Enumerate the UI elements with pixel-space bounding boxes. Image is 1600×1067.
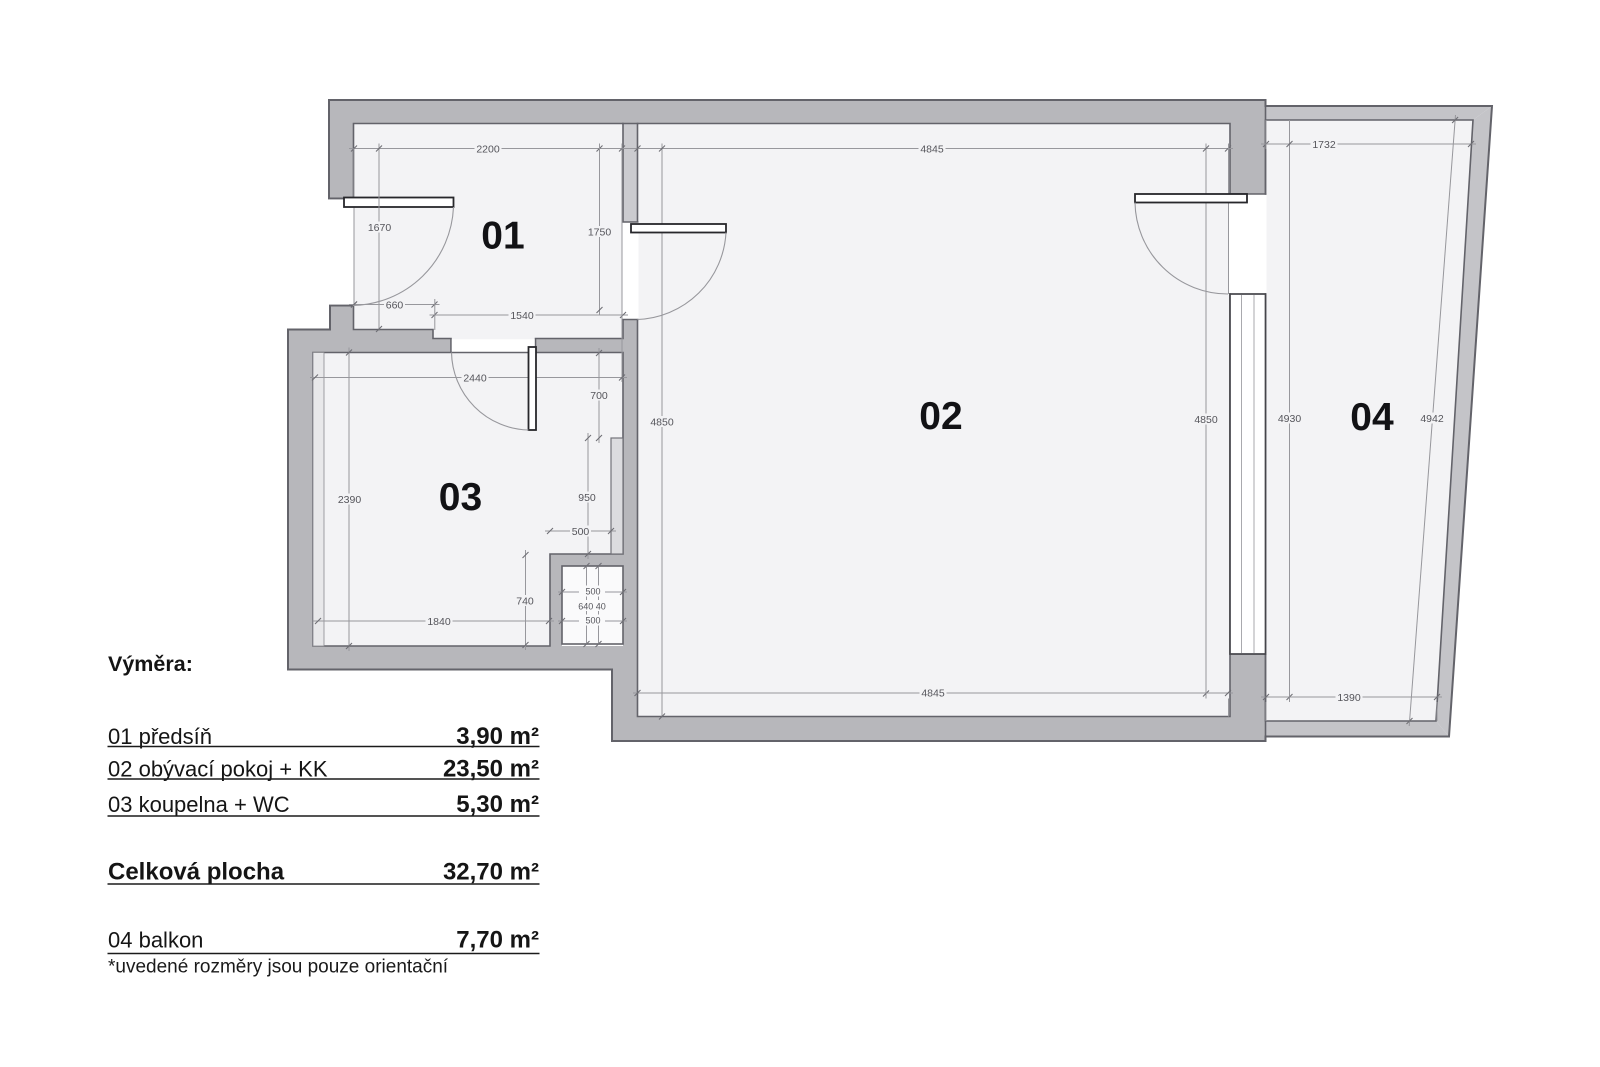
- svg-text:4850: 4850: [650, 417, 674, 429]
- svg-text:4942: 4942: [1420, 413, 1444, 425]
- svg-text:02 obývací pokoj + KK: 02 obývací pokoj + KK: [108, 757, 328, 782]
- svg-text:1750: 1750: [588, 227, 612, 239]
- svg-text:1670: 1670: [368, 222, 392, 234]
- svg-text:01 předsíň: 01 předsíň: [108, 724, 212, 749]
- svg-text:500: 500: [585, 587, 600, 597]
- svg-text:1390: 1390: [1337, 692, 1361, 704]
- svg-text:32,70 m²: 32,70 m²: [443, 859, 539, 886]
- svg-text:4845: 4845: [921, 688, 945, 700]
- svg-text:4850: 4850: [1194, 414, 1218, 426]
- svg-text:1840: 1840: [427, 616, 451, 628]
- svg-text:4930: 4930: [1278, 413, 1302, 425]
- svg-text:1732: 1732: [1312, 139, 1336, 151]
- svg-text:500: 500: [572, 526, 590, 538]
- svg-text:740: 740: [516, 596, 534, 608]
- svg-text:4845: 4845: [920, 144, 944, 156]
- svg-text:01: 01: [481, 215, 524, 258]
- svg-text:500: 500: [585, 616, 600, 626]
- svg-text:5,30 m²: 5,30 m²: [456, 791, 539, 818]
- svg-text:Celková plocha: Celková plocha: [108, 859, 285, 886]
- svg-text:Výměra:: Výměra:: [108, 652, 193, 676]
- svg-text:*uvedené rozměry jsou pouze or: *uvedené rozměry jsou pouze orientační: [108, 957, 449, 978]
- svg-text:700: 700: [590, 390, 608, 402]
- svg-text:04: 04: [1350, 396, 1394, 439]
- svg-text:02: 02: [919, 395, 962, 438]
- svg-text:2390: 2390: [338, 494, 362, 506]
- svg-text:2200: 2200: [476, 144, 500, 156]
- svg-text:2440: 2440: [463, 373, 487, 385]
- svg-text:04 balkon: 04 balkon: [108, 928, 203, 953]
- svg-text:7,70 m²: 7,70 m²: [456, 927, 539, 954]
- svg-text:03 koupelna + WC: 03 koupelna + WC: [108, 792, 290, 817]
- svg-text:1540: 1540: [510, 310, 534, 322]
- svg-text:950: 950: [578, 492, 596, 504]
- svg-text:03: 03: [439, 476, 482, 519]
- svg-text:660: 660: [386, 300, 404, 312]
- svg-text:640 40: 640 40: [578, 602, 606, 612]
